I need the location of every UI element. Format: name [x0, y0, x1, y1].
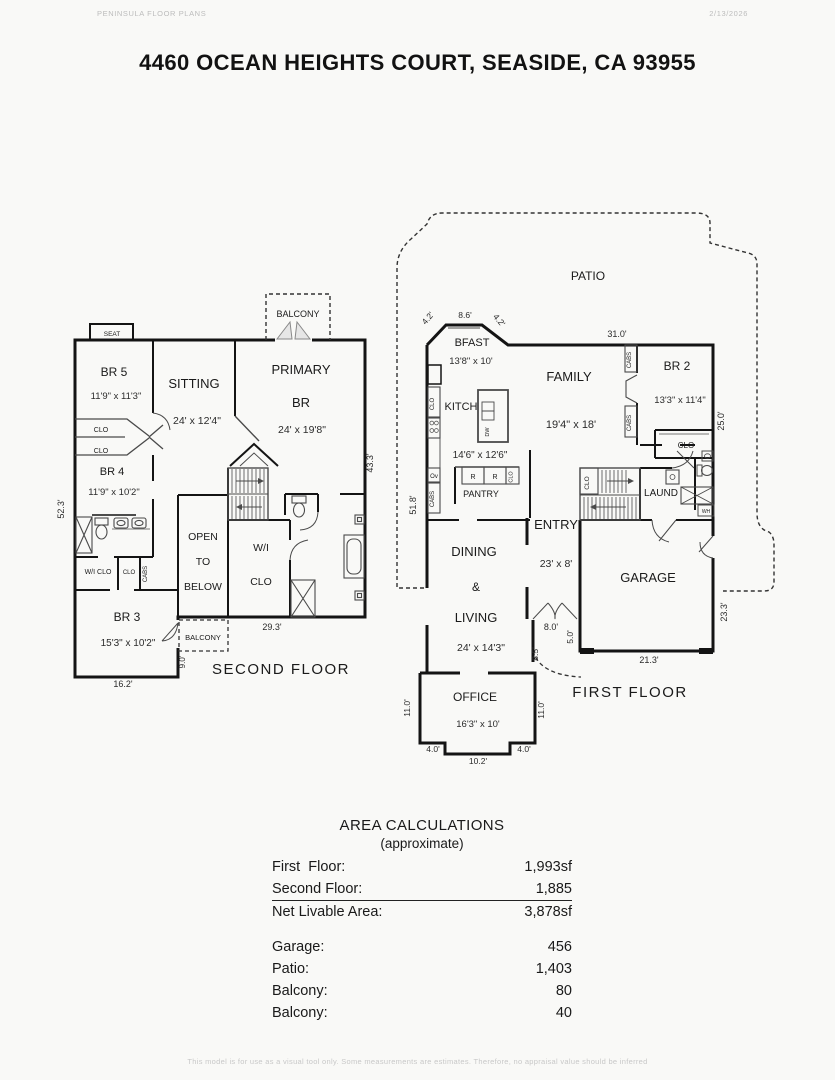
- room-label-living: LIVING: [455, 610, 498, 625]
- area-row-second-floor: Second Floor: 1,885: [272, 878, 572, 901]
- wi-clo-label: W/I CLO: [85, 569, 112, 576]
- closet-label: CLO: [123, 570, 136, 576]
- dishwasher-icon: [482, 411, 494, 420]
- dim-4-2-a: 4.2': [420, 309, 437, 326]
- dim-43-3: 43.3': [365, 453, 375, 473]
- open-below-label-3: BELOW: [184, 581, 222, 593]
- room-label-kitch: KITCH: [445, 401, 478, 413]
- room-dim-br4: 11'9" x 10'2": [88, 487, 139, 498]
- room-label-laund: LAUND: [644, 488, 678, 499]
- second-floor-title: SECOND FLOOR: [212, 661, 350, 678]
- area-value: 456: [548, 936, 572, 958]
- water-heater-label: WH: [702, 509, 711, 515]
- sink-icon: [702, 451, 713, 461]
- room-dim-kitch: 14'6" x 12'6": [453, 450, 508, 461]
- area-label: Balcony:: [272, 980, 328, 1002]
- room-dim-entry: 23' x 8': [540, 558, 573, 570]
- dim-9-0: 9.0': [178, 655, 187, 668]
- fridge-label: R: [470, 474, 475, 481]
- balcony-low-label: BALCONY: [185, 633, 221, 642]
- cabs-label: CABS: [430, 491, 436, 507]
- area-value: 1,993sf: [524, 856, 572, 878]
- open-below-label-1: OPEN: [188, 531, 218, 543]
- sink-icon: [132, 518, 146, 528]
- area-label: Patio:: [272, 958, 309, 980]
- pantry-label: PANTRY: [463, 489, 499, 499]
- area-value: 1,885: [536, 878, 572, 900]
- area-label: Second Floor:: [272, 878, 362, 900]
- wall-cabinet-icon: [355, 515, 364, 524]
- sf-labels: SEAT BALCONY BR 5 11'9" x 11'3" SITTING …: [56, 309, 375, 689]
- area-value: 1,403: [536, 958, 572, 980]
- room-dim-bfast: 13'8" x 10': [449, 356, 493, 367]
- wi-closet-label-1: W/I: [253, 542, 269, 554]
- room-label-br4: BR 4: [100, 466, 124, 478]
- disclaimer-text: This model is for use as a visual tool o…: [0, 1057, 835, 1066]
- french-doors-icon: [277, 322, 310, 339]
- ff-stairs-icon: [580, 468, 640, 520]
- dim-16-2: 16.2': [113, 679, 133, 689]
- first-floor-plan: PATIO 4.2' 8.6' 4.2' 31.0' BFAST 13'8" x…: [385, 195, 825, 780]
- room-label-sitting: SITTING: [168, 376, 219, 391]
- room-dim-family: 19'4" x 18': [546, 419, 596, 431]
- walkway-outline: [533, 651, 581, 677]
- dim-21-3: 21.3': [639, 655, 659, 665]
- room-dim-office: 16'3" x 10': [456, 719, 500, 730]
- area-row-first-floor: First Floor: 1,993sf: [272, 856, 572, 878]
- area-row-net-livable: Net Livable Area: 3,878sf: [272, 901, 572, 923]
- dim-10-2: 10.2': [469, 756, 488, 766]
- area-row-balcony-2: Balcony: 40: [272, 1002, 572, 1024]
- room-label-dining: DINING: [451, 544, 497, 559]
- closet-label: CLO: [509, 471, 515, 483]
- room-label-primary-1: PRIMARY: [272, 362, 331, 377]
- closet-label: CLO: [94, 448, 109, 455]
- closet-label: CLO: [678, 441, 694, 450]
- area-label: Balcony:: [272, 1002, 328, 1024]
- room-dim-br3: 15'3" x 10'2": [101, 638, 156, 649]
- room-label-br3: BR 3: [114, 610, 141, 624]
- dim-11-0-left: 11.0': [402, 699, 412, 717]
- dishwasher-label: DW: [485, 427, 491, 437]
- area-label: Garage:: [272, 936, 324, 958]
- wi-closet-label-2: CLO: [250, 576, 272, 588]
- area-value: 40: [556, 1002, 572, 1024]
- dim-23-3: 23.3': [719, 602, 729, 622]
- room-label-bfast: BFAST: [455, 337, 490, 349]
- wall-cabinet-icon: [355, 591, 364, 600]
- area-calculations: AREA CALCULATIONS (approximate) First Fl…: [272, 817, 572, 1024]
- dim-52-3: 52.3': [56, 499, 66, 519]
- area-row-patio: Patio: 1,403: [272, 958, 572, 980]
- sink-icon: [114, 518, 128, 528]
- room-dim-br2: 13'3" x 11'4": [654, 395, 705, 406]
- area-row-garage: Garage: 456: [272, 936, 572, 958]
- closet-label: CLO: [430, 398, 436, 411]
- balcony-top-label: BALCONY: [276, 309, 319, 319]
- date-text: 2/13/2026: [709, 9, 748, 18]
- closet-label: CLO: [94, 427, 109, 434]
- room-label-entry: ENTRY: [534, 517, 578, 532]
- room-label-primary-2: BR: [292, 395, 310, 410]
- room-dim-primary: 24' x 19'8": [278, 424, 326, 436]
- laundry-sink-icon: [666, 470, 679, 484]
- room-label-br5: BR 5: [101, 365, 128, 379]
- area-value: 80: [556, 980, 572, 1002]
- dim-8-6: 8.6': [458, 310, 472, 320]
- area-label: First Floor:: [272, 856, 345, 878]
- room-label-amp: &: [472, 580, 480, 594]
- dim-25-0: 25.0': [716, 411, 726, 431]
- cabs-label: CABS: [143, 566, 149, 582]
- dim-8-5: 8.5': [530, 647, 540, 661]
- closet-label: CLO: [584, 476, 591, 489]
- first-floor-title: FIRST FLOOR: [572, 684, 687, 701]
- dim-4-2-b: 4.2': [491, 312, 508, 329]
- area-value: 3,878sf: [524, 901, 572, 923]
- seat-label: SEAT: [104, 331, 121, 338]
- stove-icon: [428, 418, 440, 438]
- toilet-icon: [95, 518, 108, 525]
- dim-11-0-right: 11.0': [536, 701, 546, 719]
- area-row-balcony-1: Balcony: 80: [272, 980, 572, 1002]
- dim-51-8: 51.8': [408, 495, 418, 515]
- second-floor-plan: SEAT BALCONY BR 5 11'9" x 11'3" SITTING …: [55, 285, 380, 705]
- oven-label: Ov: [430, 474, 438, 480]
- room-label-garage: GARAGE: [620, 570, 676, 585]
- room-dim-living: 24' x 14'3": [457, 642, 505, 654]
- cabs-label: CABS: [627, 415, 633, 431]
- brand-text: PENINSULA FLOOR PLANS: [97, 9, 206, 18]
- laundry-bath-fixtures: [666, 451, 714, 516]
- area-label: Net Livable Area:: [272, 901, 382, 923]
- dim-4-0-right: 4.0': [517, 744, 531, 754]
- dim-5-0: 5.0': [565, 630, 575, 644]
- toilet-icon: [292, 496, 306, 503]
- fridge-label: R: [492, 474, 497, 481]
- tv-niche-icon: [626, 375, 637, 403]
- sf-stairs-icon: [228, 468, 268, 520]
- room-dim-sitting: 24' x 12'4": [173, 415, 221, 427]
- dim-8-0: 8.0': [544, 622, 559, 632]
- kitchen-island: [478, 390, 508, 442]
- room-label-br2: BR 2: [664, 359, 691, 373]
- island-sink-icon: [482, 402, 494, 411]
- area-subtitle: (approximate): [272, 836, 572, 851]
- room-dim-br5: 11'9" x 11'3": [91, 391, 142, 402]
- patio-label: PATIO: [571, 269, 605, 283]
- open-below-label-2: TO: [196, 556, 210, 568]
- room-label-family: FAMILY: [546, 369, 592, 384]
- room-label-office: OFFICE: [453, 690, 497, 704]
- dim-4-0-left: 4.0': [426, 744, 440, 754]
- area-title: AREA CALCULATIONS: [272, 817, 572, 834]
- dim-29-3: 29.3': [262, 622, 282, 632]
- cabs-label: CABS: [627, 352, 633, 368]
- dim-31-0: 31.0': [607, 329, 627, 339]
- page-title: 4460 OCEAN HEIGHTS COURT, SEASIDE, CA 93…: [0, 50, 835, 76]
